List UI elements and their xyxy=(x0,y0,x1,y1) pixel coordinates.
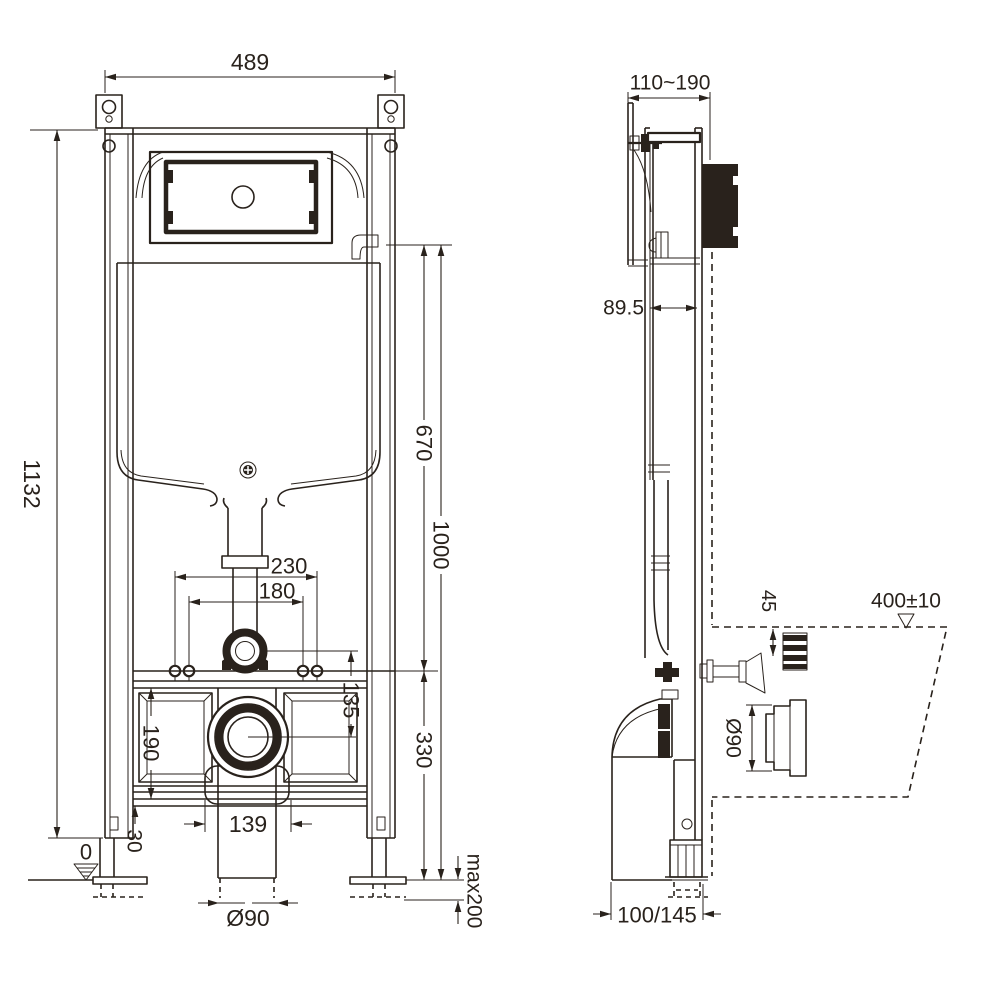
dim-depth-range: 110~190 xyxy=(630,72,711,95)
dim-30: 30 xyxy=(123,829,146,852)
dim-180: 180 xyxy=(259,579,296,604)
flush-plate-box xyxy=(702,164,738,248)
dim-bend-depth: 100/145 xyxy=(617,903,697,928)
dim-330: 330 xyxy=(412,732,437,769)
dim-190: 190 xyxy=(139,725,164,762)
dim-flush-offset: 45 xyxy=(757,590,779,612)
side-cistern xyxy=(648,133,700,682)
dim-frame-depth: 89.5 xyxy=(603,297,644,320)
cistern-frame-drawing: 489 1132 670 1000 330 230 xyxy=(0,0,1000,1000)
inlet-fitting xyxy=(352,235,378,259)
drain-adapter xyxy=(766,700,806,776)
dim-670: 670 xyxy=(412,425,437,462)
access-panel xyxy=(150,152,332,243)
push-rod-hole xyxy=(232,186,254,208)
front-view: 489 1132 670 1000 330 230 xyxy=(19,49,486,931)
flush-connector xyxy=(700,653,765,693)
dim-pan-height: 400±10 xyxy=(871,590,941,613)
drain-outlet xyxy=(205,688,289,898)
dim-1000: 1000 xyxy=(429,521,454,570)
dim-outlet-dia-side: Ø90 xyxy=(722,718,745,758)
flush-bend-outlet xyxy=(227,633,264,670)
dim-height-1132: 1132 xyxy=(19,459,45,508)
ribbed-coupling xyxy=(783,633,807,670)
dim-139: 139 xyxy=(229,811,267,837)
dim-max200: max200 xyxy=(463,854,486,929)
technical-drawing: 489 1132 670 1000 330 230 xyxy=(0,0,1000,1000)
dim-230: 230 xyxy=(271,554,308,579)
hanger-tab-right xyxy=(378,95,404,128)
dim-135: 135 xyxy=(339,682,364,719)
dim-width-489: 489 xyxy=(231,49,269,75)
side-view: 110~190 89.5 45 400±10 Ø90 100/145 xyxy=(593,72,947,928)
level-symbol xyxy=(898,614,914,628)
cistern-tank xyxy=(117,235,452,506)
inlet-valve xyxy=(649,232,668,258)
hanger-tab-left xyxy=(96,95,122,128)
drain-elbow xyxy=(612,690,678,880)
dim-outlet-dia-front: Ø90 xyxy=(226,905,269,931)
dim-floor-level: 0 xyxy=(80,840,92,865)
